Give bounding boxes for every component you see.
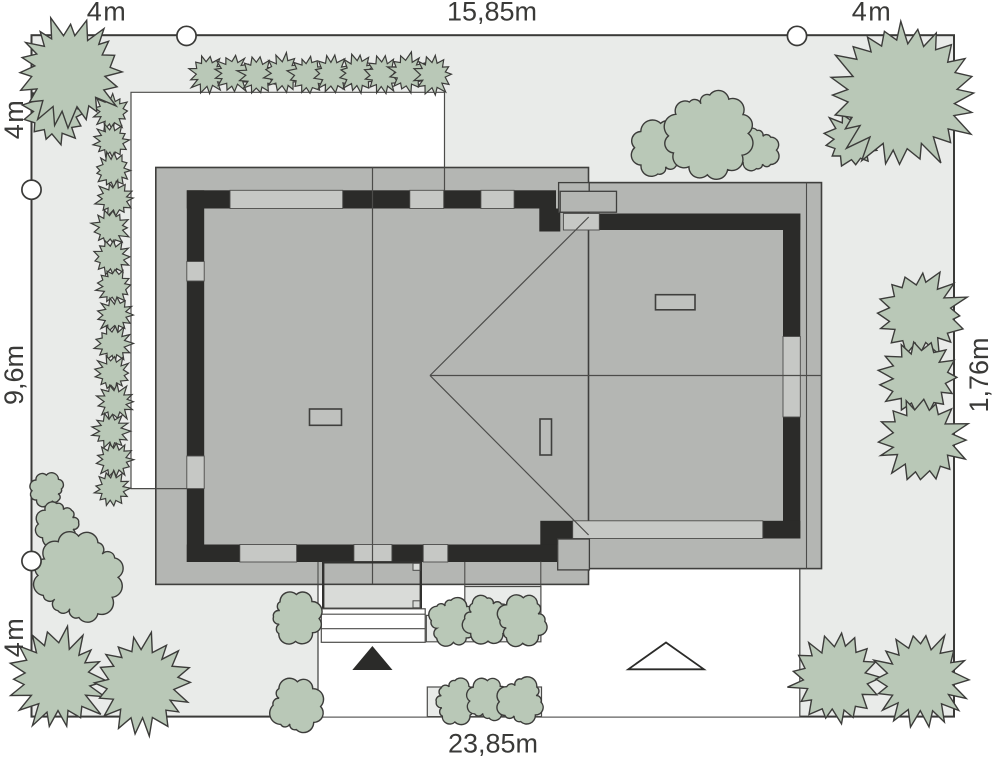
svg-text:1,76m: 1,76m	[964, 337, 994, 412]
svg-text:4m: 4m	[852, 0, 893, 27]
svg-text:23,85m: 23,85m	[448, 729, 538, 758]
svg-text:4m: 4m	[0, 617, 29, 658]
svg-text:15,85m: 15,85m	[447, 0, 537, 27]
svg-text:4m: 4m	[0, 99, 29, 140]
svg-text:4m: 4m	[87, 0, 128, 27]
svg-text:9,6m: 9,6m	[0, 345, 29, 405]
